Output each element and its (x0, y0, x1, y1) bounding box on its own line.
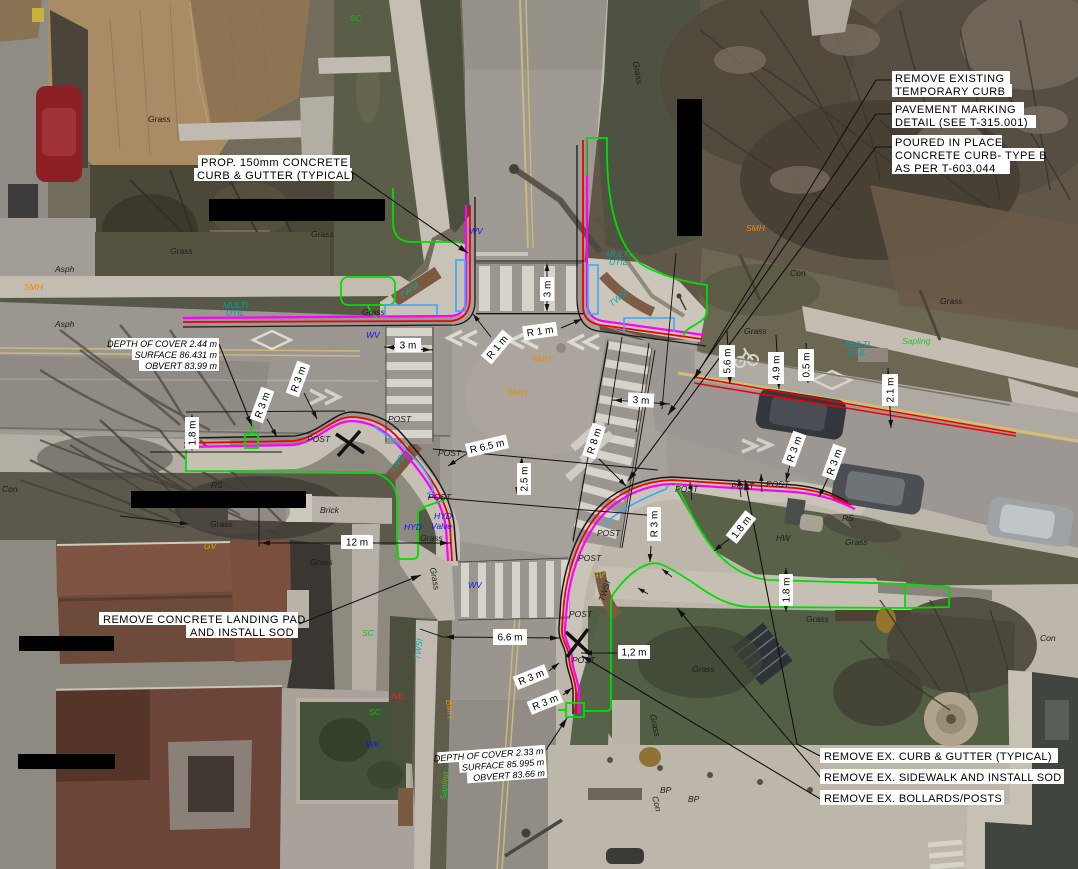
svg-text:AS PER T-603,044: AS PER T-603,044 (895, 163, 996, 175)
svg-text:Grass: Grass (310, 557, 333, 567)
svg-text:OBVERT 83.99 m: OBVERT 83.99 m (145, 361, 217, 371)
svg-text:SC: SC (369, 707, 382, 717)
svg-text:DEPTH OF COVER 2.44 m: DEPTH OF COVER 2.44 m (107, 339, 217, 349)
svg-text:POST: POST (572, 655, 596, 665)
svg-text:REMOVE EX. CURB & GUTTER (TYPI: REMOVE EX. CURB & GUTTER (TYPICAL) (824, 751, 1052, 763)
svg-text:UTIL: UTIL (226, 308, 245, 318)
svg-text:Con: Con (2, 484, 18, 494)
svg-text:Grass: Grass (311, 229, 334, 239)
svg-text:3 m: 3 m (632, 395, 649, 407)
svg-text:SC: SC (350, 13, 363, 23)
svg-text:CURB & GUTTER (TYPICAL): CURB & GUTTER (TYPICAL) (197, 170, 355, 182)
svg-text:1.8 m: 1.8 m (188, 420, 199, 445)
svg-text:GV: GV (592, 570, 606, 580)
svg-text:UTIL: UTIL (609, 257, 628, 267)
svg-text:HYD: HYD (404, 522, 422, 532)
svg-text:POST: POST (766, 479, 790, 489)
svg-text:BMH: BMH (444, 699, 456, 720)
svg-text:Con: Con (1040, 633, 1056, 643)
svg-text:Grass: Grass (210, 519, 233, 529)
svg-text:12 m: 12 m (346, 538, 368, 549)
svg-text:R 3 m: R 3 m (650, 511, 661, 538)
svg-text:POST: POST (307, 434, 331, 444)
svg-text:Grass: Grass (170, 246, 193, 256)
svg-text:1,2 m: 1,2 m (621, 648, 646, 659)
svg-text:Grass: Grass (148, 114, 171, 124)
svg-text:WV: WV (468, 580, 483, 590)
svg-text:CONCRETE CURB- TYPE B: CONCRETE CURB- TYPE B (895, 150, 1047, 162)
svg-text:POST: POST (578, 553, 602, 563)
svg-text:Grass: Grass (806, 614, 829, 624)
svg-text:4.9 m: 4.9 m (772, 355, 783, 380)
svg-text:SURFACE 86.431 m: SURFACE 86.431 m (135, 350, 218, 360)
svg-text:SMH: SMH (508, 387, 528, 397)
svg-text:RS: RS (842, 513, 854, 523)
svg-text:POST: POST (731, 481, 755, 491)
svg-text:DETAIL (SEE T-315.001): DETAIL (SEE T-315.001) (895, 117, 1028, 129)
svg-text:BP: BP (660, 785, 672, 795)
svg-text:0.5 m: 0.5 m (802, 352, 813, 377)
svg-text:WV: WV (366, 330, 381, 340)
svg-text:POST: POST (428, 492, 452, 502)
svg-text:REMOVE EX. BOLLARDS/POSTS: REMOVE EX. BOLLARDS/POSTS (824, 793, 1002, 805)
svg-text:5.6 m: 5.6 m (723, 348, 734, 373)
svg-text:Grass: Grass (940, 296, 963, 306)
svg-text:SMH: SMH (746, 223, 766, 233)
svg-text:3 m: 3 m (543, 281, 554, 298)
svg-text:UTIL: UTIL (848, 347, 867, 357)
svg-text:AND INSTALL SOD: AND INSTALL SOD (190, 627, 294, 639)
svg-text:PROP. 150mm CONCRETE: PROP. 150mm CONCRETE (201, 157, 348, 169)
svg-text:HW: HW (776, 533, 791, 543)
svg-text:POST: POST (388, 414, 412, 424)
svg-text:PAVEMENT MARKING: PAVEMENT MARKING (895, 104, 1016, 116)
svg-text:2.5 m: 2.5 m (520, 466, 531, 491)
svg-text:NE: NE (392, 691, 404, 701)
svg-text:REMOVE EX. SIDEWALK AND INSTAL: REMOVE EX. SIDEWALK AND INSTALL SOD (824, 772, 1061, 784)
svg-text:TEMPORARY CURB: TEMPORARY CURB (895, 86, 1006, 98)
svg-text:Con: Con (790, 268, 806, 278)
svg-text:3 m: 3 m (400, 341, 417, 352)
svg-text:WV: WV (469, 226, 484, 236)
svg-text:SMH: SMH (24, 282, 44, 292)
svg-text:POST: POST (597, 528, 621, 538)
svg-text:SC: SC (362, 628, 375, 638)
svg-text:Valve: Valve (431, 521, 452, 531)
svg-text:Grass: Grass (744, 326, 767, 336)
svg-text:BP: BP (688, 794, 700, 804)
svg-text:POURED IN PLACE: POURED IN PLACE (895, 137, 1003, 149)
svg-text:HYD: HYD (434, 511, 452, 521)
svg-text:RS: RS (211, 480, 223, 490)
svg-text:Asph: Asph (54, 319, 75, 329)
svg-text:1.8 m: 1.8 m (782, 577, 793, 602)
svg-text:Grass: Grass (362, 307, 385, 317)
svg-text:POST: POST (569, 609, 593, 619)
svg-text:6.6 m: 6.6 m (497, 633, 522, 644)
svg-text:SMH: SMH (532, 354, 552, 364)
svg-text:Grass: Grass (845, 537, 868, 547)
svg-text:2.1 m: 2.1 m (886, 377, 897, 402)
svg-text:Sapling: Sapling (902, 336, 931, 346)
svg-text:WK: WK (366, 739, 380, 749)
svg-text:Asph: Asph (54, 264, 75, 274)
svg-text:Grass: Grass (420, 533, 443, 543)
svg-text:REMOVE EXISTING: REMOVE EXISTING (895, 73, 1005, 85)
svg-text:GV: GV (204, 541, 218, 551)
svg-text:POST: POST (675, 484, 699, 494)
svg-text:REMOVE CONCRETE LANDING PAD: REMOVE CONCRETE LANDING PAD (103, 614, 306, 626)
svg-text:POST: POST (438, 448, 462, 458)
svg-text:Brick: Brick (320, 505, 340, 515)
svg-text:Grass: Grass (692, 664, 715, 674)
